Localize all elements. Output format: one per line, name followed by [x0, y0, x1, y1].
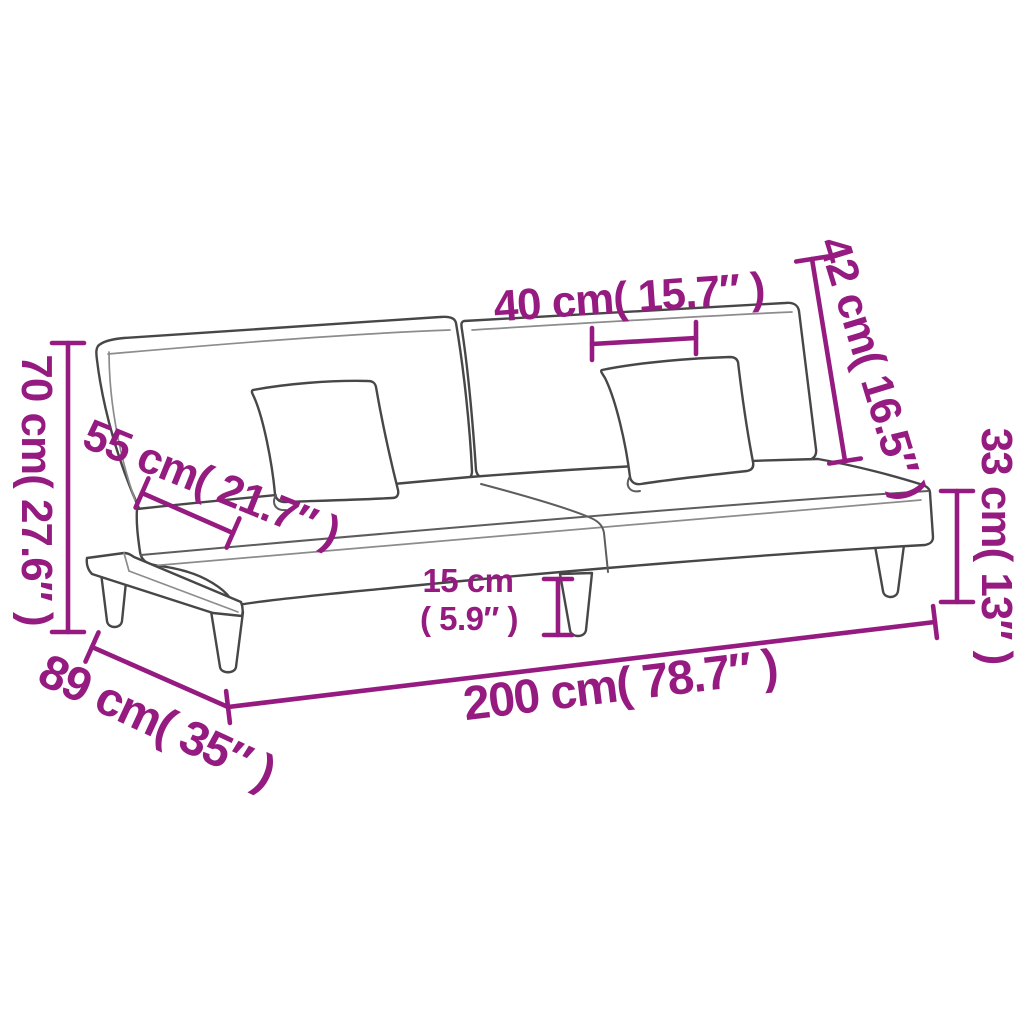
sofa-leg-front-middle — [560, 573, 592, 636]
dimension-diagram-svg: 70 cm( 27.6″ ) 55 cm( 21.7″ ) 40 cm( 15.… — [0, 0, 1024, 1024]
dimension-diagram: 70 cm( 27.6″ ) 55 cm( 21.7″ ) 40 cm( 15.… — [0, 0, 1024, 1024]
dim-total-depth-label: 89 cm( 35″ ) — [31, 644, 283, 799]
dim-seat-height-label: 33 cm( 13″ ) — [972, 428, 1021, 665]
dim-leg-height-label-cm: 15 cm — [422, 562, 513, 599]
dim-total-width-label: 200 cm( 78.7″ ) — [460, 640, 779, 731]
sofa-leg-front-left — [211, 611, 243, 672]
dim-total-height-label: 70 cm( 27.6″ ) — [12, 354, 61, 625]
dim-total-depth: 89 cm( 35″ ) — [31, 632, 283, 799]
dim-total-height: 70 cm( 27.6″ ) — [12, 343, 84, 632]
dim-leg-height-label-in: ( 5.9″ ) — [420, 600, 518, 637]
dim-seat-height: 33 cm( 13″ ) — [941, 428, 1021, 665]
sofa-leg-rear-right — [875, 545, 904, 597]
